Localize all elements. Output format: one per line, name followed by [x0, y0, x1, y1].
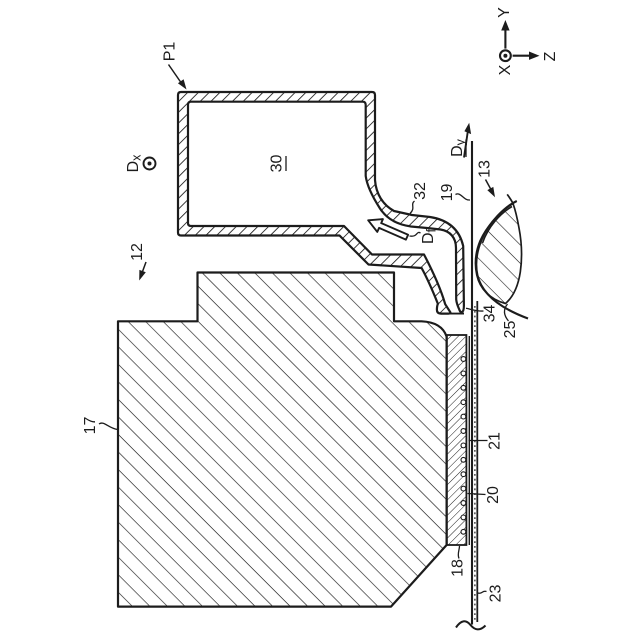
svg-text:23: 23	[488, 585, 505, 603]
svg-text:17: 17	[82, 417, 99, 435]
svg-text:Y: Y	[496, 7, 513, 18]
svg-text:25: 25	[502, 321, 519, 339]
svg-text:32: 32	[412, 182, 429, 200]
svg-text:19: 19	[439, 184, 456, 202]
svg-text:18: 18	[450, 559, 467, 577]
svg-text:Z: Z	[542, 51, 559, 61]
svg-text:20: 20	[485, 486, 502, 504]
svg-text:21: 21	[487, 432, 504, 450]
svg-text:X: X	[497, 64, 514, 75]
svg-text:30: 30	[269, 155, 286, 173]
svg-text:12: 12	[129, 243, 146, 261]
svg-text:34: 34	[482, 305, 499, 323]
svg-text:P1: P1	[162, 42, 179, 62]
svg-text:13: 13	[477, 160, 494, 178]
